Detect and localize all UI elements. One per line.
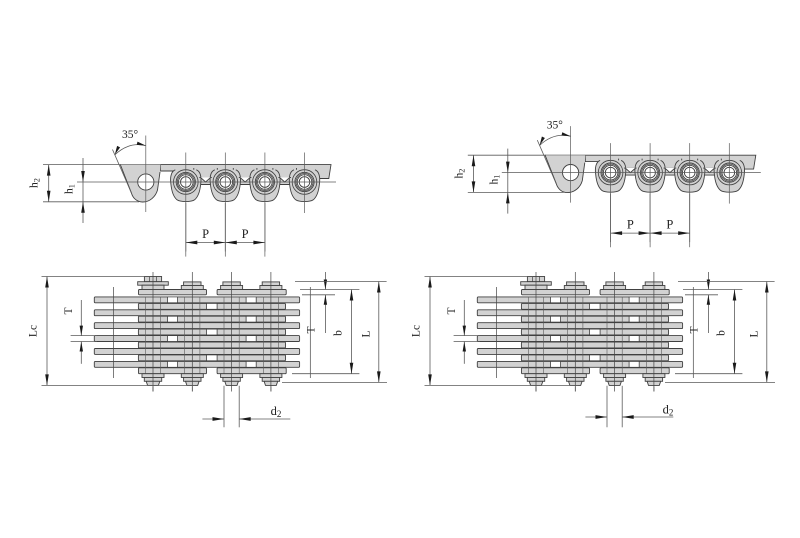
svg-text:b: b (716, 330, 728, 336)
svg-text:P: P (202, 227, 209, 241)
svg-text:Lc: Lc (411, 325, 423, 337)
svg-text:b: b (333, 330, 345, 336)
svg-text:T: T (306, 326, 318, 333)
svg-text:35°: 35° (122, 129, 139, 141)
svg-text:P: P (242, 227, 249, 241)
svg-text:P: P (666, 218, 673, 232)
svg-text:L: L (749, 330, 761, 337)
svg-text:Lc: Lc (28, 325, 40, 337)
svg-text:T: T (446, 307, 458, 314)
svg-text:L: L (361, 330, 373, 337)
svg-text:T: T (63, 307, 75, 314)
svg-text:35°: 35° (547, 120, 564, 132)
svg-text:T: T (689, 326, 701, 333)
svg-text:P: P (627, 218, 634, 232)
